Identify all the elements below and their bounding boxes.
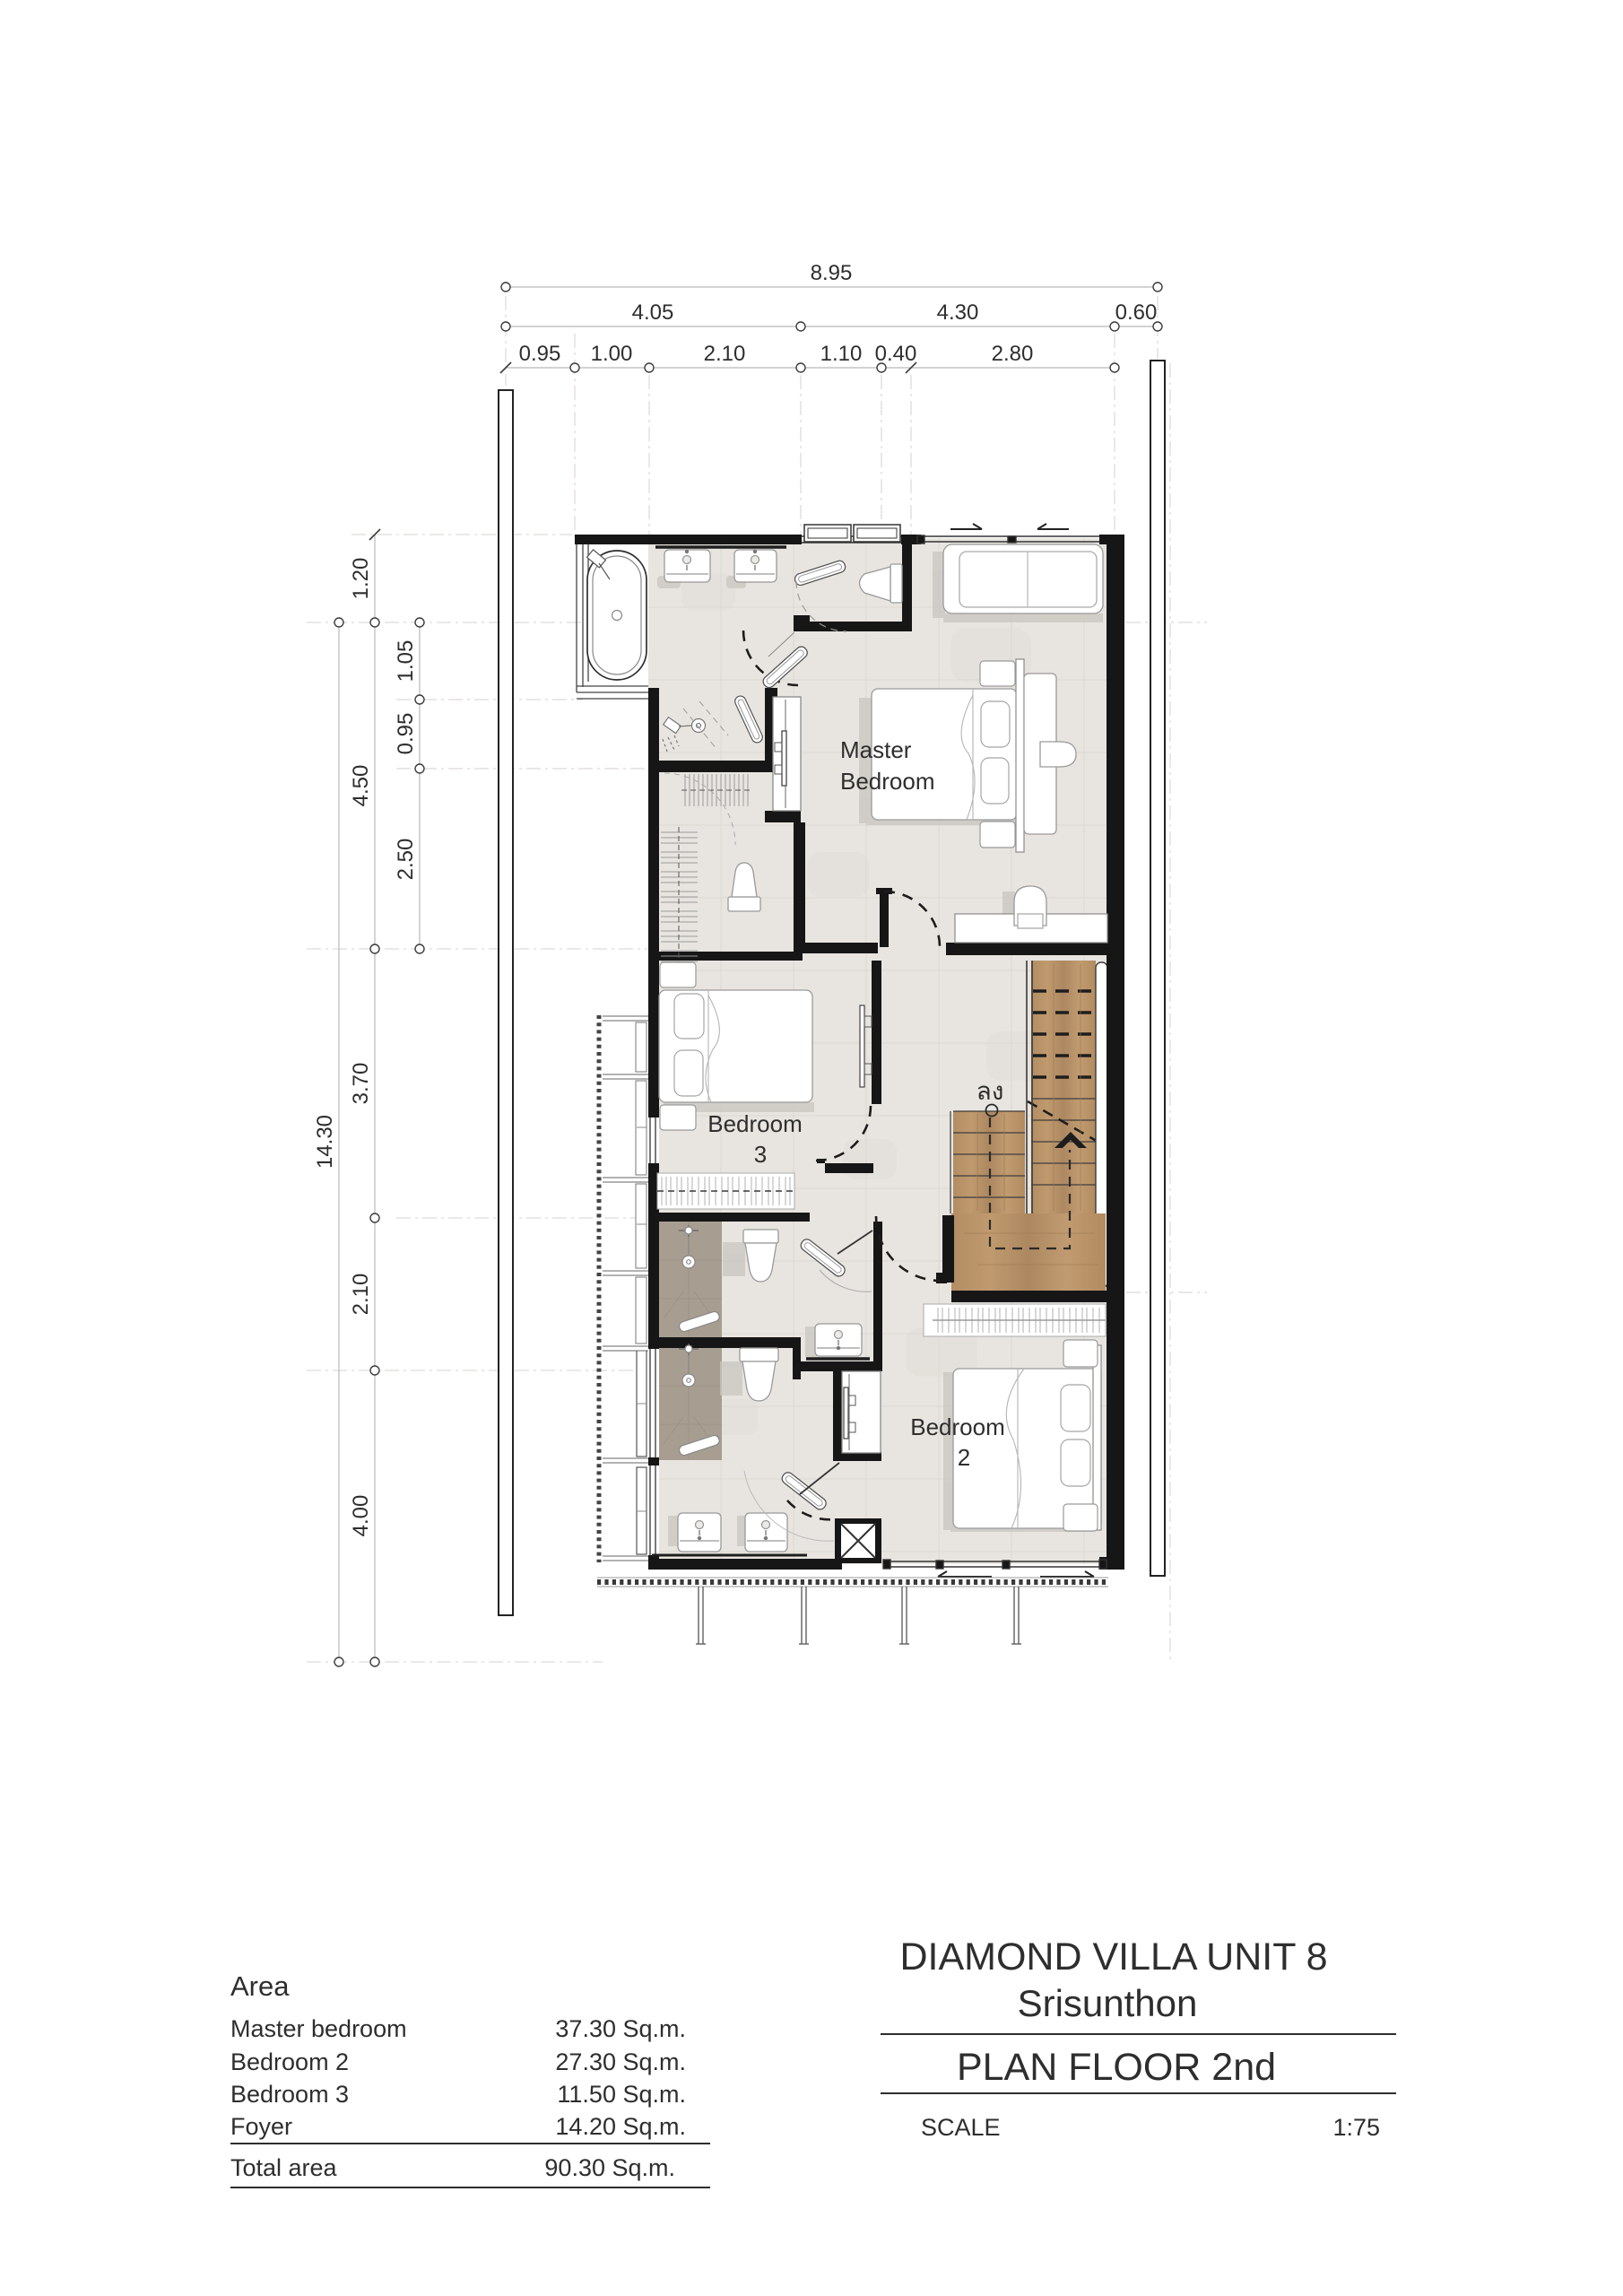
svg-text:4.50: 4.50 bbox=[349, 765, 373, 807]
svg-text:Master: Master bbox=[840, 736, 912, 763]
svg-text:8.95: 8.95 bbox=[811, 261, 853, 285]
svg-text:1.20: 1.20 bbox=[349, 558, 373, 600]
svg-text:Bedroom 3: Bedroom 3 bbox=[230, 2081, 349, 2108]
svg-text:4.00: 4.00 bbox=[349, 1495, 373, 1537]
svg-text:2.50: 2.50 bbox=[394, 839, 418, 881]
svg-text:1:75: 1:75 bbox=[1332, 2114, 1380, 2141]
svg-text:0.60: 0.60 bbox=[1115, 300, 1158, 325]
svg-text:90.30 Sq.m.: 90.30 Sq.m. bbox=[544, 2154, 675, 2181]
svg-text:ลง: ลง bbox=[976, 1077, 1004, 1105]
svg-text:2.80: 2.80 bbox=[992, 342, 1034, 366]
svg-text:11.50 Sq.m.: 11.50 Sq.m. bbox=[557, 2081, 686, 2108]
svg-text:1.10: 1.10 bbox=[820, 342, 863, 366]
svg-text:Master bedroom: Master bedroom bbox=[230, 2015, 407, 2042]
svg-text:0.40: 0.40 bbox=[875, 342, 917, 366]
svg-text:Bedroom 2: Bedroom 2 bbox=[230, 2048, 349, 2075]
svg-text:Foyer: Foyer bbox=[230, 2113, 292, 2140]
svg-text:SCALE: SCALE bbox=[921, 2114, 1001, 2141]
svg-text:4.05: 4.05 bbox=[632, 300, 674, 325]
svg-text:2.10: 2.10 bbox=[349, 1274, 373, 1316]
svg-text:3.70: 3.70 bbox=[349, 1063, 373, 1105]
svg-text:1.05: 1.05 bbox=[394, 640, 418, 683]
svg-text:14.20 Sq.m.: 14.20 Sq.m. bbox=[555, 2113, 686, 2140]
svg-text:Bedroom: Bedroom bbox=[910, 1413, 1005, 1440]
svg-text:2.10: 2.10 bbox=[704, 342, 746, 366]
svg-text:1.00: 1.00 bbox=[591, 342, 633, 366]
svg-text:4.30: 4.30 bbox=[937, 300, 979, 325]
svg-text:Area: Area bbox=[230, 1970, 290, 2002]
svg-text:0.95: 0.95 bbox=[519, 342, 561, 366]
svg-text:0.95: 0.95 bbox=[394, 713, 418, 755]
svg-text:Bedroom: Bedroom bbox=[840, 768, 935, 795]
svg-text:DIAMOND VILLA UNIT 8: DIAMOND VILLA UNIT 8 bbox=[899, 1935, 1327, 1979]
svg-text:PLAN FLOOR 2nd: PLAN FLOOR 2nd bbox=[957, 2046, 1276, 2089]
svg-text:37.30 Sq.m.: 37.30 Sq.m. bbox=[555, 2015, 686, 2042]
svg-text:Total area: Total area bbox=[230, 2154, 338, 2181]
svg-text:14.30: 14.30 bbox=[313, 1115, 337, 1169]
svg-text:3: 3 bbox=[754, 1141, 767, 1168]
svg-text:27.30 Sq.m.: 27.30 Sq.m. bbox=[555, 2048, 686, 2075]
svg-text:Bedroom: Bedroom bbox=[707, 1110, 803, 1137]
svg-text:Srisunthon: Srisunthon bbox=[1018, 1982, 1198, 2024]
svg-text:2: 2 bbox=[958, 1444, 970, 1471]
